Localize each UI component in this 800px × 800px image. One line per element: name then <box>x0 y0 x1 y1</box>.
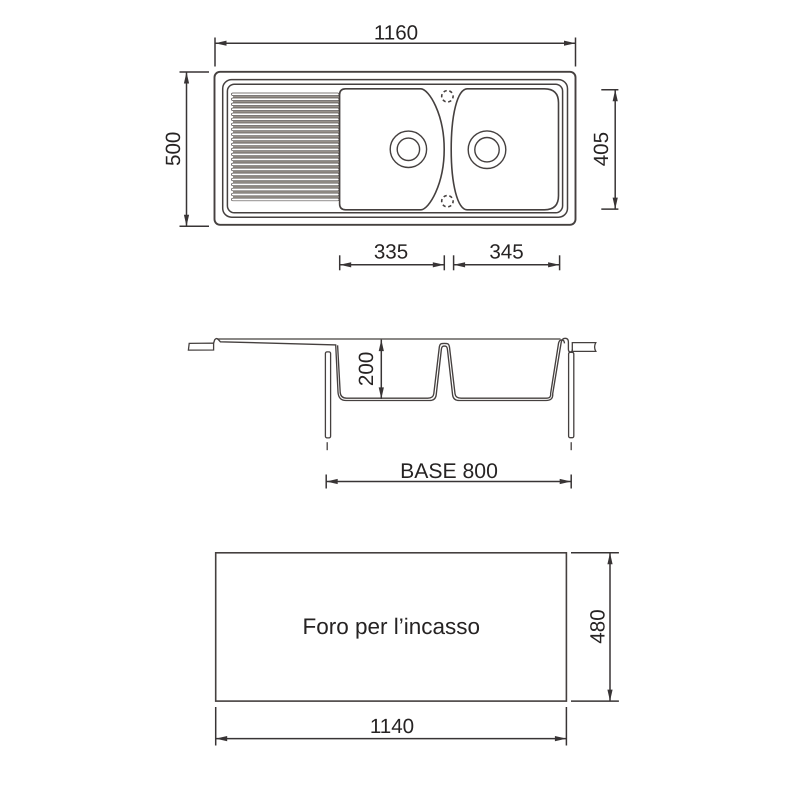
svg-text:500: 500 <box>162 132 185 166</box>
svg-text:1160: 1160 <box>374 21 418 44</box>
svg-text:1140: 1140 <box>370 715 414 738</box>
svg-text:405: 405 <box>590 132 613 166</box>
svg-text:335: 335 <box>374 241 408 264</box>
svg-text:480: 480 <box>586 609 609 643</box>
svg-text:Foro per l’incasso: Foro per l’incasso <box>303 614 481 639</box>
svg-text:BASE 800: BASE 800 <box>400 460 498 483</box>
svg-text:200: 200 <box>355 352 378 386</box>
svg-text:345: 345 <box>489 241 523 264</box>
